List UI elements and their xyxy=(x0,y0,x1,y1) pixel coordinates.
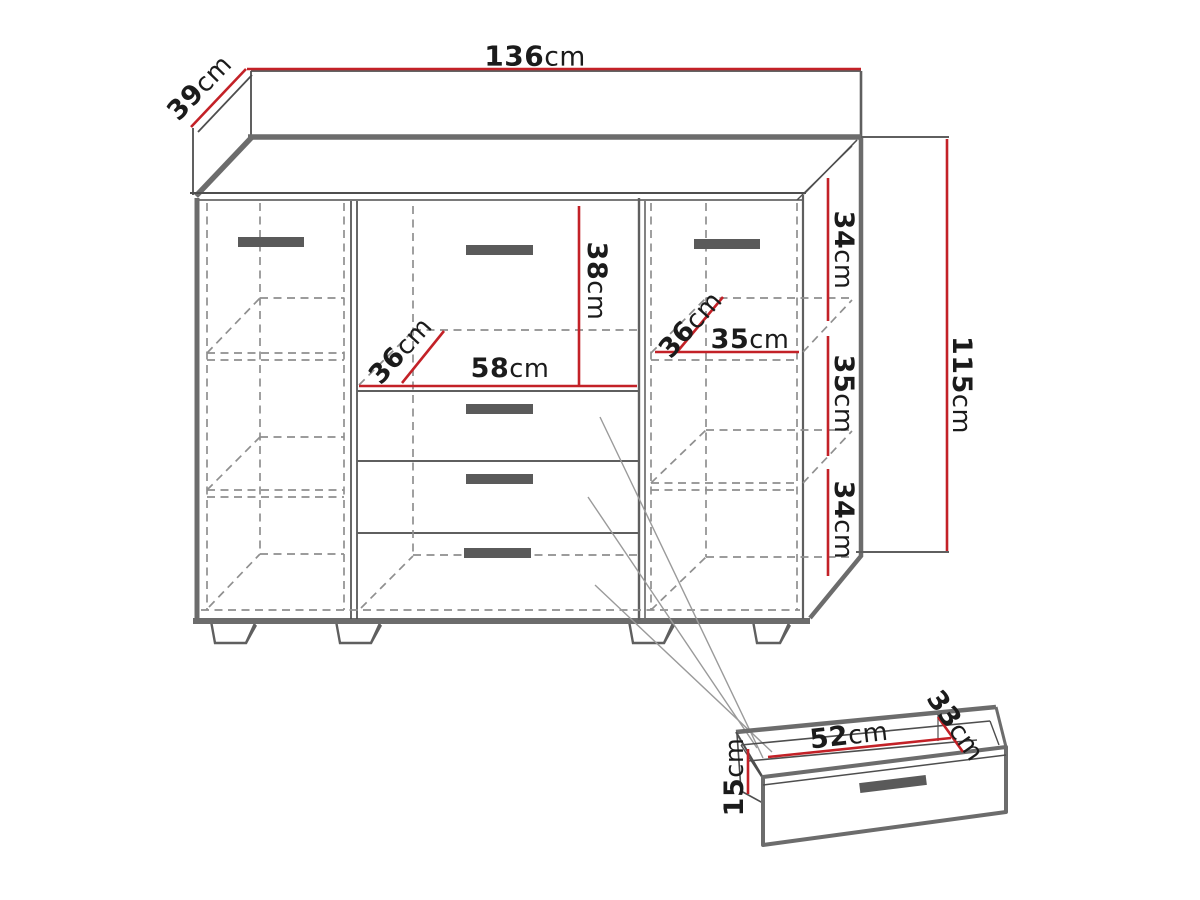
leader-lines xyxy=(588,417,772,758)
back-panel xyxy=(193,71,861,195)
dim-right-shelf-width: 35cm xyxy=(711,326,790,354)
drawer2-handle xyxy=(466,404,533,414)
extension-lines xyxy=(856,137,949,552)
dim-right-bottom-compartment: 34cm xyxy=(829,481,857,560)
dim-drawer-front-height: 38cm xyxy=(582,242,610,321)
left-door-handle xyxy=(238,237,304,247)
dim-overall-height: 115cm xyxy=(947,336,975,434)
dim-right-middle-compartment: 35cm xyxy=(829,355,857,434)
drawer3-handle xyxy=(466,474,533,484)
handles xyxy=(238,237,760,558)
dim-center-width: 58cm xyxy=(471,355,550,383)
top-panel xyxy=(190,137,861,200)
drawer4-handle xyxy=(464,548,531,558)
sideboard-drawing xyxy=(0,0,1200,900)
dim-detail-drawer-height: 15cm xyxy=(721,738,749,817)
dim-overall-width: 136cm xyxy=(484,43,585,72)
drawer1-handle xyxy=(466,245,533,255)
right-door-handle xyxy=(694,239,760,249)
dim-right-top-compartment: 34cm xyxy=(829,211,857,290)
dimension-diagram: 136cm 39cm 38cm 36cm 58cm 36cm 35cm 34cm… xyxy=(0,0,1200,900)
